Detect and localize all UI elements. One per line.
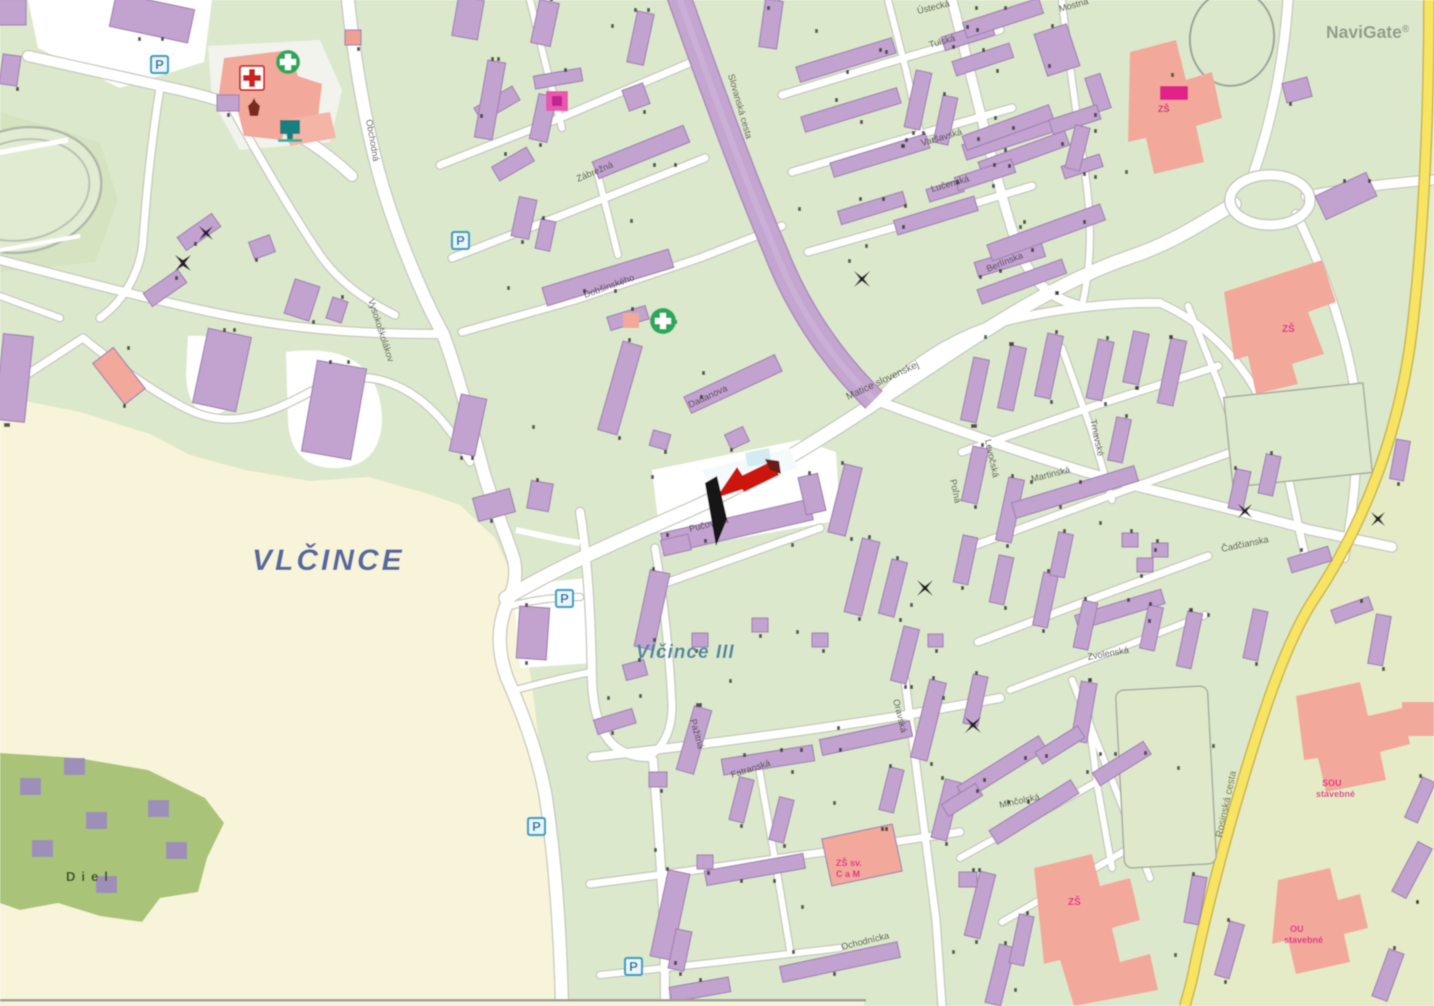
svg-text:ZŠ: ZŠ xyxy=(1282,322,1295,335)
svg-text:P: P xyxy=(532,819,541,834)
svg-text:VLČINCE: VLČINCE xyxy=(252,543,405,577)
svg-text:stavebné: stavebné xyxy=(1316,789,1355,799)
svg-text:P: P xyxy=(560,591,569,606)
svg-text:P: P xyxy=(456,233,465,248)
svg-text:stavebné: stavebné xyxy=(1284,935,1323,945)
svg-text:P: P xyxy=(629,959,638,974)
svg-text:C a M: C a M xyxy=(836,869,860,879)
svg-text:ZŠ sv.: ZŠ sv. xyxy=(836,857,862,868)
svg-text:ZŠ: ZŠ xyxy=(1068,895,1081,908)
svg-text:P: P xyxy=(155,57,164,72)
svg-text:Vlčince III: Vlčince III xyxy=(636,642,735,663)
svg-text:Diel: Diel xyxy=(66,869,114,884)
svg-text:ZŠ: ZŠ xyxy=(1158,103,1170,114)
svg-text:NaviGate®: NaviGate® xyxy=(1326,22,1410,42)
svg-text:SOU: SOU xyxy=(1322,778,1342,788)
svg-text:OU: OU xyxy=(1290,924,1304,934)
